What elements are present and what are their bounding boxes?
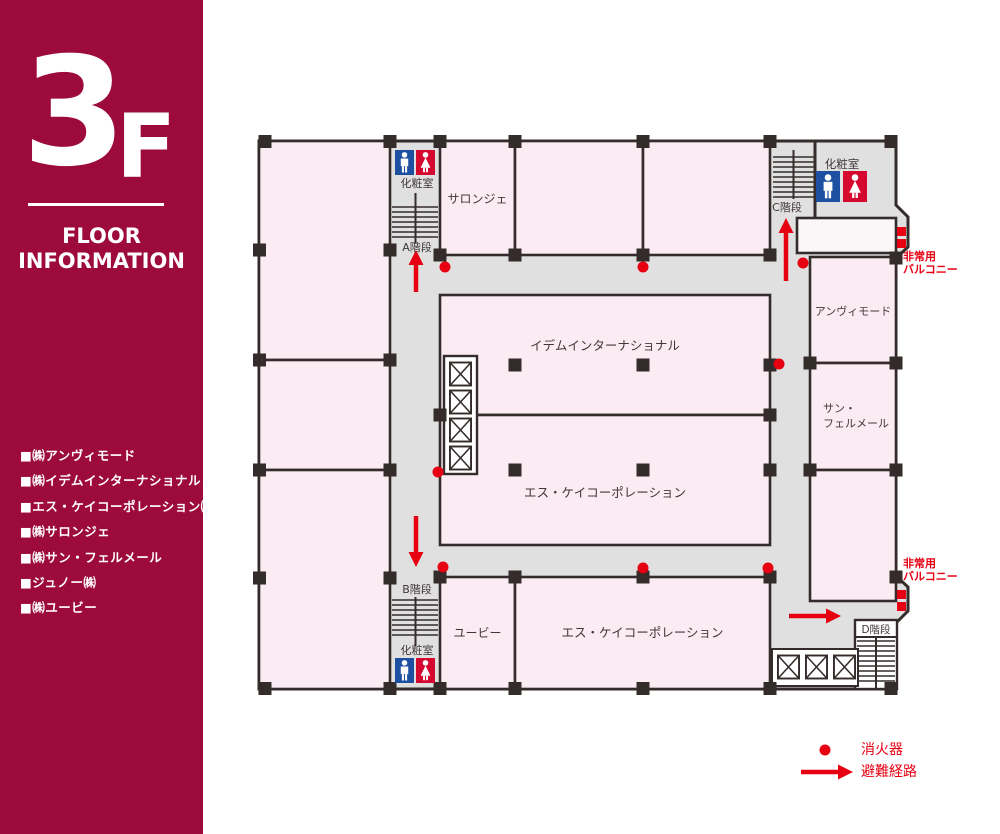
- wall-column: [434, 682, 447, 695]
- wall-column: [384, 464, 397, 477]
- elevator-bank-bottom: [772, 649, 858, 686]
- fire-extinguisher-dot: [638, 262, 649, 273]
- wall-column: [764, 135, 777, 148]
- elevator-icon: [450, 391, 471, 414]
- wall-column: [253, 572, 266, 585]
- wall-column: [253, 354, 266, 367]
- wall-column: [434, 409, 447, 422]
- room-label-san-fermail: サン・ フェルメール: [823, 401, 889, 431]
- room-left-top: [259, 141, 390, 360]
- balcony-mark: [897, 590, 906, 599]
- room-top-3: [643, 141, 770, 255]
- room-label-idem: イデムインターナショナル: [440, 339, 770, 353]
- wall-column: [637, 359, 650, 372]
- wall-column: [764, 409, 777, 422]
- room-label-san-line2: フェルメール: [823, 416, 889, 431]
- floor-information-page: 3 F FLOOR INFORMATION ■㈱アンヴィモード ■㈱イデムインタ…: [0, 0, 1000, 834]
- legend-extinguisher-dot: [820, 745, 831, 756]
- restroom-label-a: 化粧室: [390, 177, 444, 191]
- balcony-label-bottom: 非常用 バルコニー: [903, 557, 958, 583]
- restroom-label-c: 化粧室: [815, 157, 869, 171]
- balcony-mark: [897, 602, 906, 611]
- balcony-label-line2: バルコニー: [903, 570, 958, 583]
- wall-column: [637, 135, 650, 148]
- wall-column: [637, 464, 650, 477]
- elevator-icon: [806, 656, 827, 679]
- wall-column: [509, 359, 522, 372]
- wall-column: [637, 249, 650, 262]
- room-top-right-small: [797, 218, 896, 253]
- wall-column: [253, 244, 266, 257]
- wall-column: [764, 682, 777, 695]
- fire-extinguisher-dot: [638, 563, 649, 574]
- elevator-icon: [450, 419, 471, 442]
- wall-column: [764, 464, 777, 477]
- wall-column: [804, 464, 817, 477]
- legend-symbols: [801, 745, 853, 780]
- balcony-mark: [897, 227, 906, 236]
- wall-column: [890, 571, 903, 584]
- wall-column: [509, 682, 522, 695]
- restroom-label-b: 化粧室: [390, 644, 444, 658]
- room-label-sk-bottom: エス・ケイコーポレーション: [515, 626, 770, 640]
- wall-column: [890, 464, 903, 477]
- fire-extinguisher-dot: [438, 562, 449, 573]
- room-label-ube: ユービー: [440, 626, 515, 640]
- wall-column: [434, 135, 447, 148]
- room-right-bottom: [810, 470, 896, 601]
- elevator-icon: [778, 656, 799, 679]
- balcony-marks: [897, 227, 906, 611]
- wall-column: [434, 571, 447, 584]
- elevator-shaft-center: [444, 356, 477, 474]
- room-label-anvi: アンヴィモード: [810, 305, 896, 319]
- balcony-label-top: 非常用 バルコニー: [903, 250, 958, 276]
- balcony-mark: [897, 239, 906, 248]
- elevator-icon: [834, 656, 855, 679]
- wall-column: [384, 135, 397, 148]
- wall-column: [259, 682, 272, 695]
- wall-column: [885, 135, 898, 148]
- wall-column: [509, 571, 522, 584]
- room-label-sk-center: エス・ケイコーポレーション: [440, 486, 770, 500]
- stairs-label-a: A階段: [392, 241, 442, 255]
- wall-column: [509, 135, 522, 148]
- wall-column: [890, 252, 903, 265]
- wall-column: [384, 682, 397, 695]
- fire-extinguisher-dot: [798, 258, 809, 269]
- stairs-label-c: C階段: [762, 201, 812, 215]
- fire-extinguisher-dot: [763, 563, 774, 574]
- balcony-label-line1: 非常用: [903, 557, 958, 570]
- wall-column: [890, 357, 903, 370]
- fire-extinguisher-dot: [774, 359, 785, 370]
- room-idem: [440, 295, 770, 415]
- wall-column: [509, 249, 522, 262]
- balcony-label-line2: バルコニー: [903, 263, 958, 276]
- stairs-label-d: D階段: [855, 623, 897, 637]
- wall-column: [804, 357, 817, 370]
- elevator-icon: [450, 363, 471, 386]
- legend-route-arrow: [801, 765, 853, 780]
- wall-column: [885, 682, 898, 695]
- wall-column: [259, 135, 272, 148]
- stairs-label-b: B階段: [392, 583, 442, 597]
- wall-column: [764, 249, 777, 262]
- wall-column: [253, 464, 266, 477]
- room-label-san-line1: サン・: [823, 401, 889, 416]
- legend-extinguisher-label: 消火器: [861, 742, 903, 758]
- fire-extinguisher-dot: [433, 467, 444, 478]
- room-left-bottom: [259, 470, 390, 689]
- wall-column: [384, 354, 397, 367]
- room-top-2: [515, 141, 643, 255]
- wall-column: [637, 682, 650, 695]
- room-sk-center: [440, 415, 770, 545]
- room-label-salonje: サロンジェ: [440, 192, 515, 206]
- legend-route-label: 避難経路: [861, 764, 917, 780]
- wall-column: [509, 464, 522, 477]
- fire-extinguisher-dot: [440, 262, 451, 273]
- balcony-label-line1: 非常用: [903, 250, 958, 263]
- elevator-icon: [450, 447, 471, 470]
- room-left-middle: [259, 360, 390, 470]
